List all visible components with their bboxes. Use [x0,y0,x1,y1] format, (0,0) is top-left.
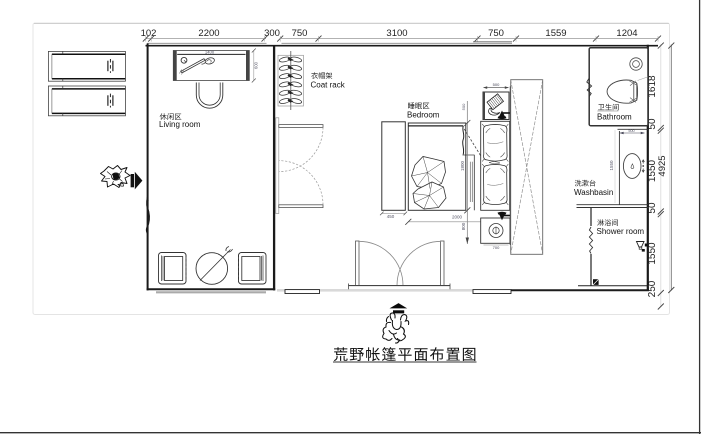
svg-text:500: 500 [628,129,634,133]
svg-text:750: 750 [488,28,504,39]
svg-text:1559: 1559 [545,28,566,39]
svg-text:Coat rack: Coat rack [311,81,346,90]
svg-text:450: 450 [387,214,395,219]
svg-text:800: 800 [461,222,466,230]
svg-text:Living room: Living room [159,120,201,129]
svg-text:750: 750 [292,28,308,39]
svg-text:102: 102 [141,28,157,39]
svg-text:2200: 2200 [198,28,219,39]
svg-text:Washbasin: Washbasin [574,188,613,197]
svg-text:700: 700 [493,245,500,250]
svg-text:4925: 4925 [657,155,668,176]
svg-text:Bathroom: Bathroom [597,112,632,121]
svg-text:Shower room: Shower room [597,227,645,236]
svg-text:Bedroom: Bedroom [407,110,440,119]
svg-text:1800: 1800 [460,160,465,171]
svg-text:3100: 3100 [386,28,407,39]
svg-text:1550: 1550 [609,160,614,171]
svg-text:500: 500 [461,103,466,110]
svg-text:1204: 1204 [616,28,637,39]
svg-text:1400: 1400 [205,49,215,54]
svg-text:2000: 2000 [452,215,463,220]
svg-text:500: 500 [493,82,500,87]
svg-text:300: 300 [264,28,280,39]
svg-text:600: 600 [254,61,259,69]
